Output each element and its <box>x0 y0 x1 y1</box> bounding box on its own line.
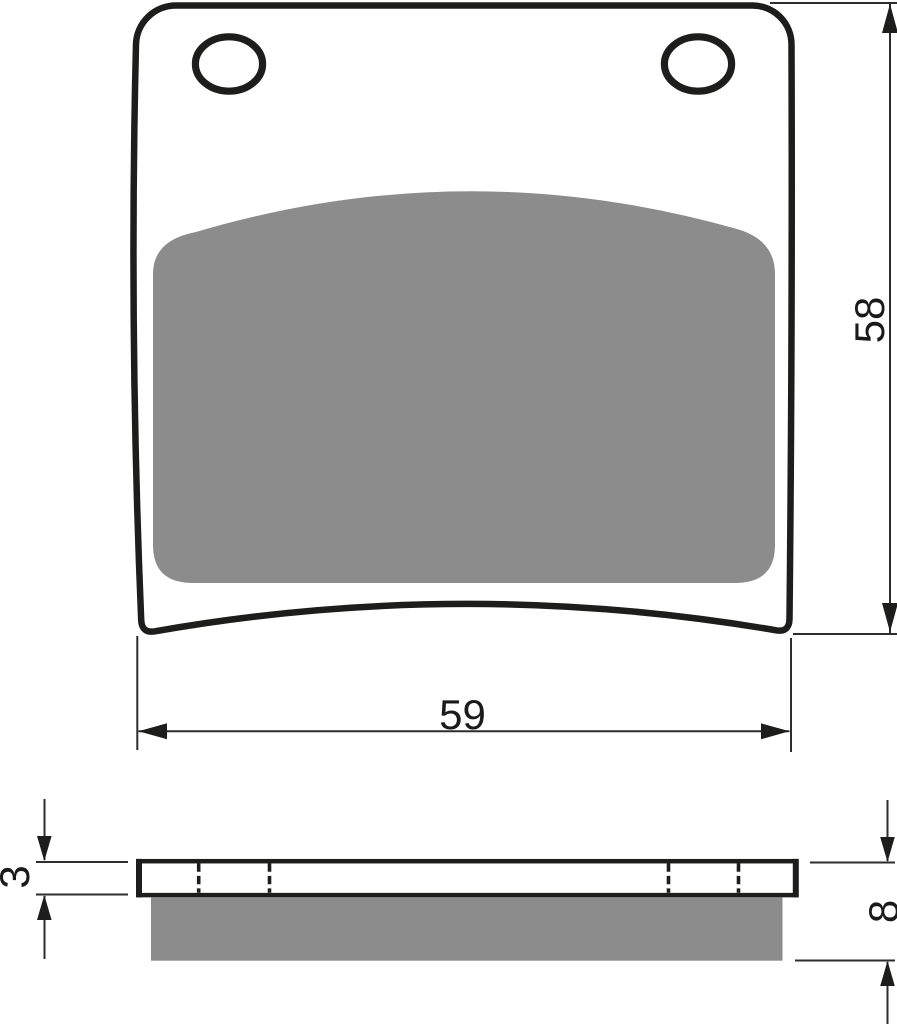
svg-text:3: 3 <box>0 865 38 888</box>
svg-text:58: 58 <box>846 297 893 344</box>
svg-text:8: 8 <box>860 900 897 923</box>
svg-text:59: 59 <box>439 691 486 738</box>
